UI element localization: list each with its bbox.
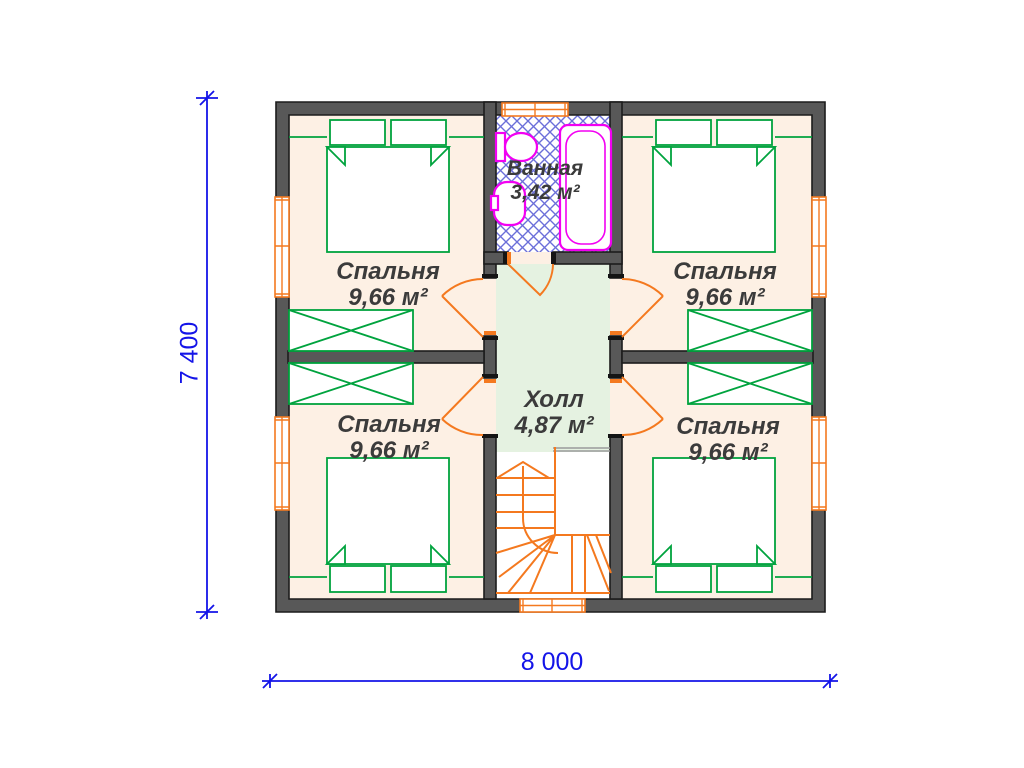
window-icon-left-bottom bbox=[275, 417, 289, 510]
room-area: 9,66 м² bbox=[673, 285, 776, 311]
room-area: 9,66 м² bbox=[336, 285, 439, 311]
wardrobe-icon-bottom-right bbox=[688, 363, 812, 404]
wardrobe-icon-bottom-left bbox=[289, 363, 413, 404]
stairwell-floor bbox=[496, 452, 610, 599]
room-area: 9,66 м² bbox=[337, 438, 440, 464]
window-icon-bottom bbox=[520, 599, 585, 612]
room-name: Спальня bbox=[337, 412, 440, 438]
room-label-bedroom-top-right: Спальня 9,66 м² bbox=[673, 259, 776, 312]
room-name: Спальня bbox=[336, 259, 439, 285]
room-name: Спальня bbox=[676, 414, 779, 440]
floor-plan-drawing bbox=[0, 0, 1024, 768]
room-label-bedroom-top-left: Спальня 9,66 м² bbox=[336, 259, 439, 312]
window-icon-left-top bbox=[275, 197, 289, 297]
window-icon-right-bottom bbox=[812, 417, 826, 510]
floor-plan-canvas: Спальня 9,66 м² Спальня 9,66 м² Спальня … bbox=[0, 0, 1024, 768]
wardrobe-icon-top-right bbox=[688, 310, 812, 351]
room-label-bathroom: Ванная 3,42 м² bbox=[507, 157, 583, 205]
room-name: Ванная bbox=[507, 157, 583, 181]
room-area: 4,87 м² bbox=[514, 413, 593, 439]
room-area: 9,66 м² bbox=[676, 440, 779, 466]
window-icon-right-top bbox=[812, 197, 826, 297]
room-label-hall: Холл 4,87 м² bbox=[514, 387, 593, 440]
room-name: Спальня bbox=[673, 259, 776, 285]
dimension-height-label: 7 400 bbox=[176, 322, 205, 385]
room-label-bedroom-bottom-right: Спальня 9,66 м² bbox=[676, 414, 779, 467]
wardrobe-icon-top-left bbox=[289, 310, 413, 351]
room-name: Холл bbox=[514, 387, 593, 413]
dimension-width-label: 8 000 bbox=[521, 648, 584, 677]
room-area: 3,42 м² bbox=[507, 181, 583, 205]
window-icon-top bbox=[502, 103, 568, 116]
room-label-bedroom-bottom-left: Спальня 9,66 м² bbox=[337, 412, 440, 465]
